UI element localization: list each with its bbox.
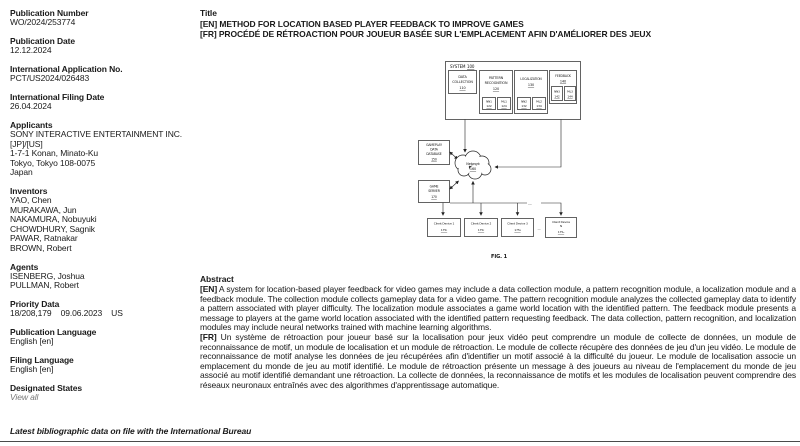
field-agents: Agents ISENBERG, Joshua PULLMAN, Robert	[10, 262, 192, 291]
client-device-3-label: Client Device 3	[507, 222, 528, 226]
database-num: 150	[431, 158, 437, 162]
figure-1-svg: .... SYSTEM 100 DATA COLLECTION 110 PATT…	[415, 53, 585, 265]
database-line2: DATA	[430, 148, 439, 152]
bibliographic-panel: Publication Number WO/2024/253774 Public…	[10, 8, 192, 411]
field-publication-number: Publication Number WO/2024/253774	[10, 8, 192, 28]
feedback-num: 140	[560, 80, 566, 84]
figure-caption: FIG. 1	[491, 254, 508, 260]
client-device-1-label: Client Device 1	[434, 222, 455, 226]
figure-1: .... SYSTEM 100 DATA COLLECTION 110 PATT…	[415, 53, 585, 265]
field-designated-states: Designated States View all	[10, 383, 192, 403]
ml2-num: 134	[536, 104, 541, 108]
client-device-n-label2: N	[560, 224, 562, 228]
latest-biblio-note: Latest bibliographic data on file with t…	[10, 426, 251, 436]
intl-application-no-value: PCT/US2024/026483	[10, 74, 192, 84]
abstract-en-text: A system for location-based player feedb…	[200, 284, 796, 332]
ml1-label: ML1	[501, 100, 507, 104]
abstract-fr-tag: [FR]	[200, 332, 217, 342]
field-label: Agents	[10, 262, 192, 272]
field-priority-data: Priority Data 18/208,179 09.06.2023 US	[10, 299, 192, 319]
nn1-num: 122	[486, 104, 491, 108]
client-device-2-label: Client Device 2	[471, 222, 492, 226]
data-collection-num: 110	[459, 86, 465, 90]
patent-biblio-page: Publication Number WO/2024/253774 Public…	[0, 0, 800, 446]
nn1-label: NN1	[486, 100, 492, 104]
publication-date-value: 12.12.2024	[10, 46, 192, 56]
publication-number-value: WO/2024/253774	[10, 18, 192, 28]
game-server-line2: SERVER	[428, 189, 440, 193]
abstract-fr-text: Un système de rétroaction pour joueur ba…	[200, 332, 796, 390]
network-cloud: Network 160	[455, 151, 491, 179]
localization-num: 130	[528, 83, 534, 87]
nn2-label: NN2	[521, 100, 527, 104]
priority-data-value: 18/208,179 09.06.2023 US	[10, 309, 192, 319]
client-device-1-num: 175₁	[441, 228, 447, 232]
client-device-n-num: 175ₙ	[558, 230, 564, 234]
data-collection-line1: DATA	[458, 75, 467, 79]
abstract-en: [EN] A system for location-based player …	[200, 285, 796, 333]
network-num: 160	[470, 167, 476, 171]
title-fr-text: PROCÉDÉ DE RÉTROACTION POUR JOUEUR BASÉE…	[219, 29, 651, 39]
pattern-recognition-num: 120	[493, 87, 499, 91]
nn3-label: NN3	[554, 90, 560, 94]
title-fr: [FR] PROCÉDÉ DE RÉTROACTION POUR JOUEUR …	[200, 30, 796, 40]
client-device-2-num: 175₂	[478, 228, 484, 232]
title-heading: Title	[200, 8, 796, 18]
ml2-label: ML2	[536, 100, 542, 104]
bottom-divider	[0, 441, 800, 442]
field-filing-language: Filing Language English [en]	[10, 355, 192, 375]
system-label: SYSTEM	[450, 64, 466, 69]
pattern-recognition-line1: PATTERN	[489, 76, 504, 80]
publication-language-value: English [en]	[10, 337, 192, 347]
intl-filing-date-value: 26.04.2024	[10, 102, 192, 112]
title-en-text: METHOD FOR LOCATION BASED PLAYER FEEDBAC…	[219, 19, 523, 29]
field-inventors: Inventors YAO, Chen MURAKAWA, Jun NAKAMU…	[10, 186, 192, 253]
client-device-3-num: 175₃	[514, 228, 521, 232]
applicants-value: SONY INTERACTIVE ENTERTAINMENT INC. [JP]…	[10, 130, 192, 178]
database-line3: DATABASE	[426, 152, 441, 156]
system-num: 100	[467, 64, 475, 69]
agents-value: ISENBERG, Joshua PULLMAN, Robert	[10, 272, 192, 291]
filing-language-value: English [en]	[10, 365, 192, 375]
nn3-num: 142	[554, 95, 559, 99]
nn2-num: 132	[521, 104, 526, 108]
data-collection-line2: COLLECTION	[452, 80, 473, 84]
field-publication-language: Publication Language English [en]	[10, 327, 192, 347]
field-intl-filing-date: International Filing Date 26.04.2024	[10, 92, 192, 112]
database-line1: GAMEPLAY	[426, 143, 442, 147]
field-publication-date: Publication Date 12.12.2024	[10, 36, 192, 56]
abstract-heading: Abstract	[200, 274, 796, 284]
inventors-value: YAO, Chen MURAKAWA, Jun NAKAMURA, Nobuyu…	[10, 196, 192, 253]
bus-ellipsis: ....	[528, 202, 532, 206]
game-server-line1: GAME	[430, 185, 439, 189]
abstract-en-tag: [EN]	[200, 284, 217, 294]
title-en-tag: [EN]	[200, 19, 217, 29]
title-block: Title [EN] METHOD FOR LOCATION BASED PLA…	[200, 8, 796, 39]
ml3-num: 144	[567, 95, 572, 99]
field-intl-application-no: International Application No. PCT/US2024…	[10, 64, 192, 84]
view-all-link[interactable]: View all	[10, 393, 192, 403]
title-fr-tag: [FR]	[200, 29, 217, 39]
abstract-fr: [FR] Un système de rétroaction pour joue…	[200, 333, 796, 391]
game-server-num: 170	[431, 195, 437, 199]
field-applicants: Applicants SONY INTERACTIVE ENTERTAINMEN…	[10, 120, 192, 178]
network-label: Network	[466, 162, 480, 166]
ml1-num: 124	[501, 104, 506, 108]
localization-line1: LOCALIZATION	[520, 77, 542, 81]
feedback-line1: FEEDBACK	[555, 74, 572, 78]
abstract-section: Abstract [EN] A system for location-base…	[200, 274, 796, 391]
pattern-recognition-line2: RECOGNITION	[485, 81, 508, 85]
client-row-ellipsis: ...	[538, 227, 541, 231]
ml3-label: ML3	[567, 90, 573, 94]
